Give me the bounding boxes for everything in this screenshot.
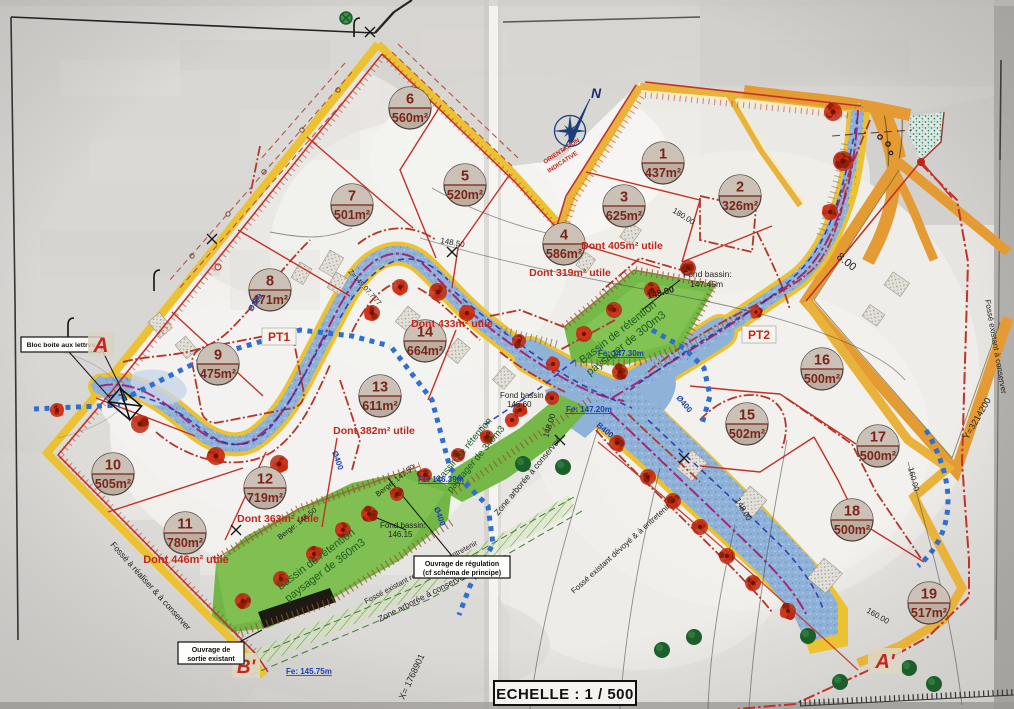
svg-text:10: 10 bbox=[105, 458, 121, 474]
svg-text:146.60: 146.60 bbox=[507, 400, 532, 409]
svg-text:12: 12 bbox=[257, 472, 273, 488]
svg-text:11: 11 bbox=[177, 517, 192, 533]
svg-text:7: 7 bbox=[348, 189, 356, 205]
svg-text:437m²: 437m² bbox=[645, 166, 681, 180]
svg-text:6: 6 bbox=[406, 92, 414, 108]
svg-text:Fe: 147.20m: Fe: 147.20m bbox=[566, 405, 612, 414]
svg-text:5: 5 bbox=[461, 169, 469, 185]
svg-text:Bloc boite aux lettres: Bloc boite aux lettres bbox=[27, 342, 96, 349]
svg-text:Ouvrage de: Ouvrage de bbox=[192, 647, 231, 654]
svg-text:500m²: 500m² bbox=[860, 449, 896, 463]
svg-text:9: 9 bbox=[214, 348, 222, 364]
svg-text:560m²: 560m² bbox=[392, 111, 428, 125]
svg-text:13: 13 bbox=[372, 380, 388, 396]
svg-text:A': A' bbox=[874, 651, 895, 673]
svg-text:Dont 319m² utile: Dont 319m² utile bbox=[529, 267, 611, 279]
svg-text:N: N bbox=[591, 85, 602, 101]
svg-text:17: 17 bbox=[870, 430, 886, 446]
svg-text:4: 4 bbox=[560, 228, 568, 244]
svg-text:Dont 405m² utile: Dont 405m² utile bbox=[581, 240, 663, 252]
svg-text:PT2: PT2 bbox=[748, 328, 770, 342]
svg-text:(cf schéma de principe): (cf schéma de principe) bbox=[423, 570, 501, 577]
svg-text:Fond bassin:: Fond bassin: bbox=[683, 269, 732, 279]
svg-text:Ouvrage de régulation: Ouvrage de régulation bbox=[425, 561, 499, 568]
svg-text:500m²: 500m² bbox=[834, 523, 870, 537]
svg-text:3: 3 bbox=[620, 190, 628, 206]
svg-text:664m²: 664m² bbox=[407, 344, 443, 358]
svg-text:146.15: 146.15 bbox=[388, 530, 413, 539]
svg-text:ECHELLE : 1 / 500: ECHELLE : 1 / 500 bbox=[496, 686, 634, 703]
svg-text:475m²: 475m² bbox=[200, 367, 236, 381]
svg-text:1: 1 bbox=[659, 147, 667, 163]
svg-text:15: 15 bbox=[739, 408, 755, 424]
svg-text:Dont 433m² utile: Dont 433m² utile bbox=[411, 318, 493, 330]
svg-text:18: 18 bbox=[844, 504, 860, 520]
svg-text:505m²: 505m² bbox=[95, 477, 131, 491]
svg-text:719m²: 719m² bbox=[247, 491, 283, 505]
svg-text:Dont 382m² utile: Dont 382m² utile bbox=[333, 425, 415, 437]
svg-text:586m²: 586m² bbox=[546, 247, 582, 261]
svg-text:8: 8 bbox=[266, 274, 274, 290]
svg-text:780m²: 780m² bbox=[167, 536, 203, 550]
svg-text:Fe: 147.30m: Fe: 147.30m bbox=[598, 349, 644, 358]
svg-text:16: 16 bbox=[814, 353, 830, 369]
svg-text:326m²: 326m² bbox=[722, 199, 758, 213]
svg-text:Dont 446m² utile: Dont 446m² utile bbox=[143, 554, 229, 566]
svg-text:Fond bassin:: Fond bassin: bbox=[380, 521, 426, 530]
svg-text:611m²: 611m² bbox=[362, 399, 397, 413]
svg-text:A: A bbox=[92, 334, 108, 357]
svg-text:520m²: 520m² bbox=[447, 188, 483, 202]
svg-text:Fe: 145.75m: Fe: 145.75m bbox=[286, 667, 332, 676]
svg-text:502m²: 502m² bbox=[729, 427, 765, 441]
svg-text:PT1: PT1 bbox=[268, 330, 290, 344]
svg-text:517m²: 517m² bbox=[911, 606, 947, 620]
svg-text:Fe: 146.39m: Fe: 146.39m bbox=[418, 475, 464, 484]
svg-text:19: 19 bbox=[921, 587, 937, 603]
svg-text:2: 2 bbox=[736, 180, 744, 196]
svg-text:147.45m: 147.45m bbox=[690, 279, 723, 289]
svg-text:500m²: 500m² bbox=[804, 372, 840, 386]
svg-text:sortie existant: sortie existant bbox=[187, 656, 235, 663]
svg-text:501m²: 501m² bbox=[334, 208, 370, 222]
svg-text:Fond bassin: Fond bassin bbox=[500, 391, 544, 400]
svg-text:625m²: 625m² bbox=[606, 209, 642, 223]
